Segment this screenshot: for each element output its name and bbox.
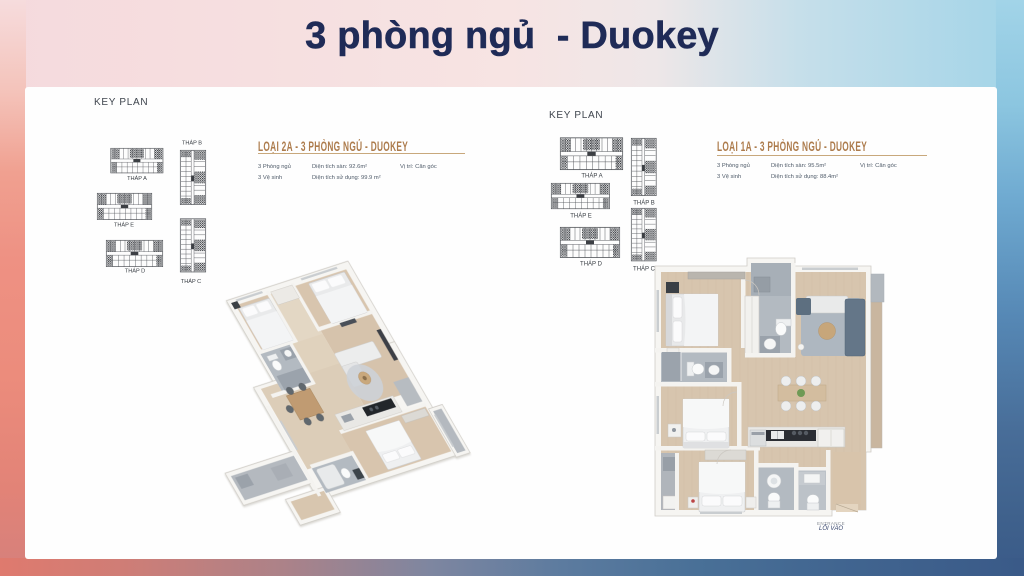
svg-text:THÁP D: THÁP D <box>125 268 145 275</box>
svg-text:THÁP D: THÁP D <box>580 261 603 268</box>
svg-text:THÁP A: THÁP A <box>127 175 147 182</box>
svg-text:THÁP C: THÁP C <box>181 278 201 285</box>
svg-text:THÁP C: THÁP C <box>633 266 656 273</box>
svg-text:THÁP B: THÁP B <box>633 200 655 207</box>
svg-text:THÁP E: THÁP E <box>114 222 134 229</box>
svg-text:THÁP A: THÁP A <box>581 173 602 180</box>
svg-text:THÁP B: THÁP B <box>182 140 202 147</box>
svg-text:THÁP E: THÁP E <box>570 213 592 220</box>
